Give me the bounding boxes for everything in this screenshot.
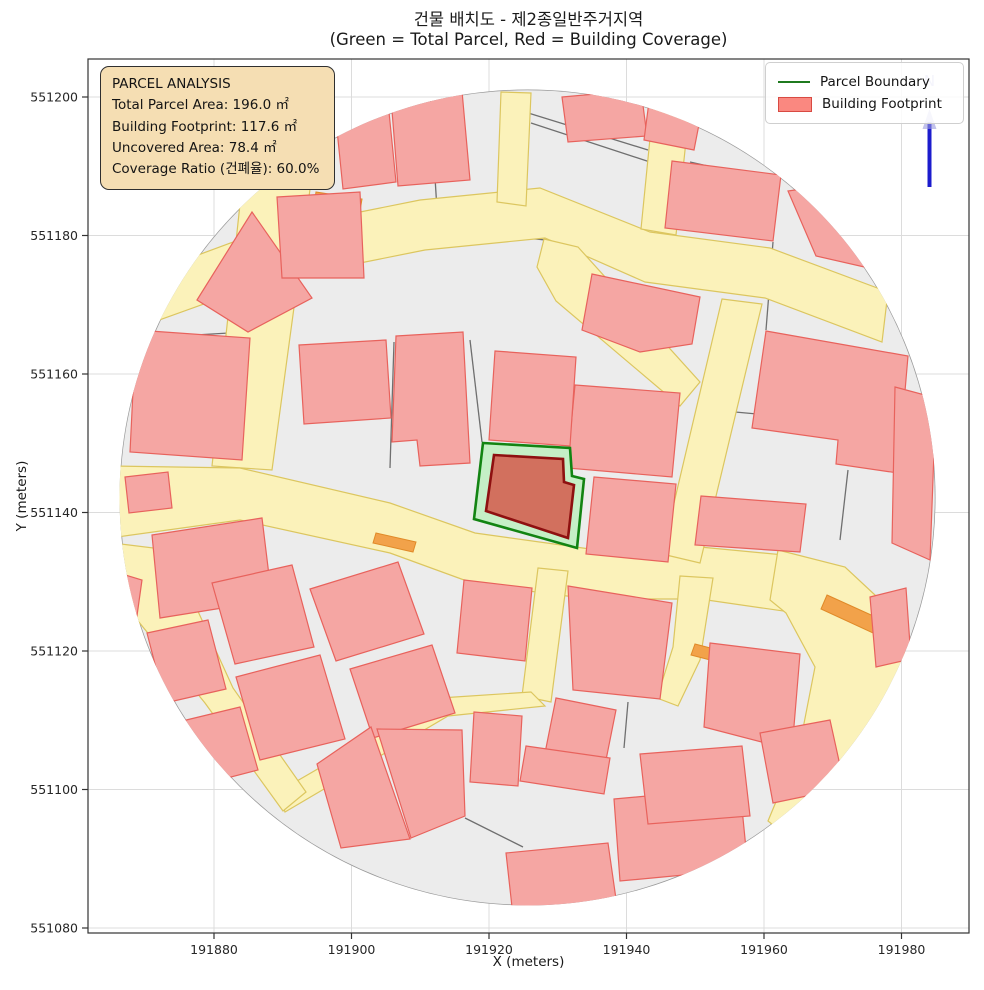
y-tick-label: 551140 xyxy=(30,505,78,520)
building-footprint-patch-swatch xyxy=(778,97,812,112)
building-polygon xyxy=(640,746,750,824)
y-tick-label: 551100 xyxy=(30,782,78,797)
building-polygon xyxy=(299,340,391,424)
y-tick-label: 551180 xyxy=(30,228,78,243)
y-tick-label: 551080 xyxy=(30,921,78,936)
building-polygon xyxy=(892,387,936,560)
parcel-analysis-title: PARCEL ANALYSIS xyxy=(112,74,324,95)
parcel-analysis-box: PARCEL ANALYSIS Total Parcel Area: 196.0… xyxy=(100,66,335,190)
building-polygon xyxy=(489,351,576,446)
y-tick-label: 551120 xyxy=(30,644,78,659)
building-polygon xyxy=(457,580,532,661)
map-content xyxy=(105,88,936,916)
building-footprint-text: Building Footprint: 117.6 ㎡ xyxy=(112,117,324,138)
building-polygon xyxy=(562,90,647,142)
legend-item-parcel-boundary: Parcel Boundary xyxy=(766,74,963,90)
legend: Parcel Boundary Building Footprint xyxy=(765,62,964,124)
building-polygon xyxy=(568,586,672,699)
building-polygon xyxy=(105,570,142,630)
building-polygon xyxy=(870,588,911,667)
building-polygon xyxy=(644,94,702,150)
figure: 건물 배치도 - 제2종일반주거지역 (Green = Total Parcel… xyxy=(0,0,984,990)
y-axis-label: Y (meters) xyxy=(14,461,30,532)
building-polygon xyxy=(695,496,806,552)
building-polygon xyxy=(760,720,845,803)
legend-item-building-footprint: Building Footprint xyxy=(766,96,963,112)
legend-label-building-footprint: Building Footprint xyxy=(822,96,942,112)
building-polygon xyxy=(506,843,617,916)
y-tick-label: 551160 xyxy=(30,367,78,382)
building-polygon xyxy=(665,161,781,241)
building-polygon xyxy=(130,330,250,460)
total-parcel-area-text: Total Parcel Area: 196.0 ㎡ xyxy=(112,95,324,116)
y-tick-label: 551200 xyxy=(30,90,78,105)
building-polygon xyxy=(470,712,522,786)
x-axis-label: X (meters) xyxy=(88,954,969,970)
building-polygon xyxy=(336,112,396,189)
building-polygon xyxy=(391,91,470,186)
parcel-boundary-line-swatch xyxy=(778,81,810,83)
building-polygon xyxy=(125,472,172,513)
building-polygon xyxy=(567,385,680,477)
building-polygon xyxy=(277,192,364,278)
coverage-ratio-text: Coverage Ratio (건폐율): 60.0% xyxy=(112,159,324,180)
building-polygon xyxy=(586,477,676,562)
uncovered-area-text: Uncovered Area: 78.4 ㎡ xyxy=(112,138,324,159)
legend-label-parcel-boundary: Parcel Boundary xyxy=(820,74,930,90)
road-polygon xyxy=(497,92,531,206)
